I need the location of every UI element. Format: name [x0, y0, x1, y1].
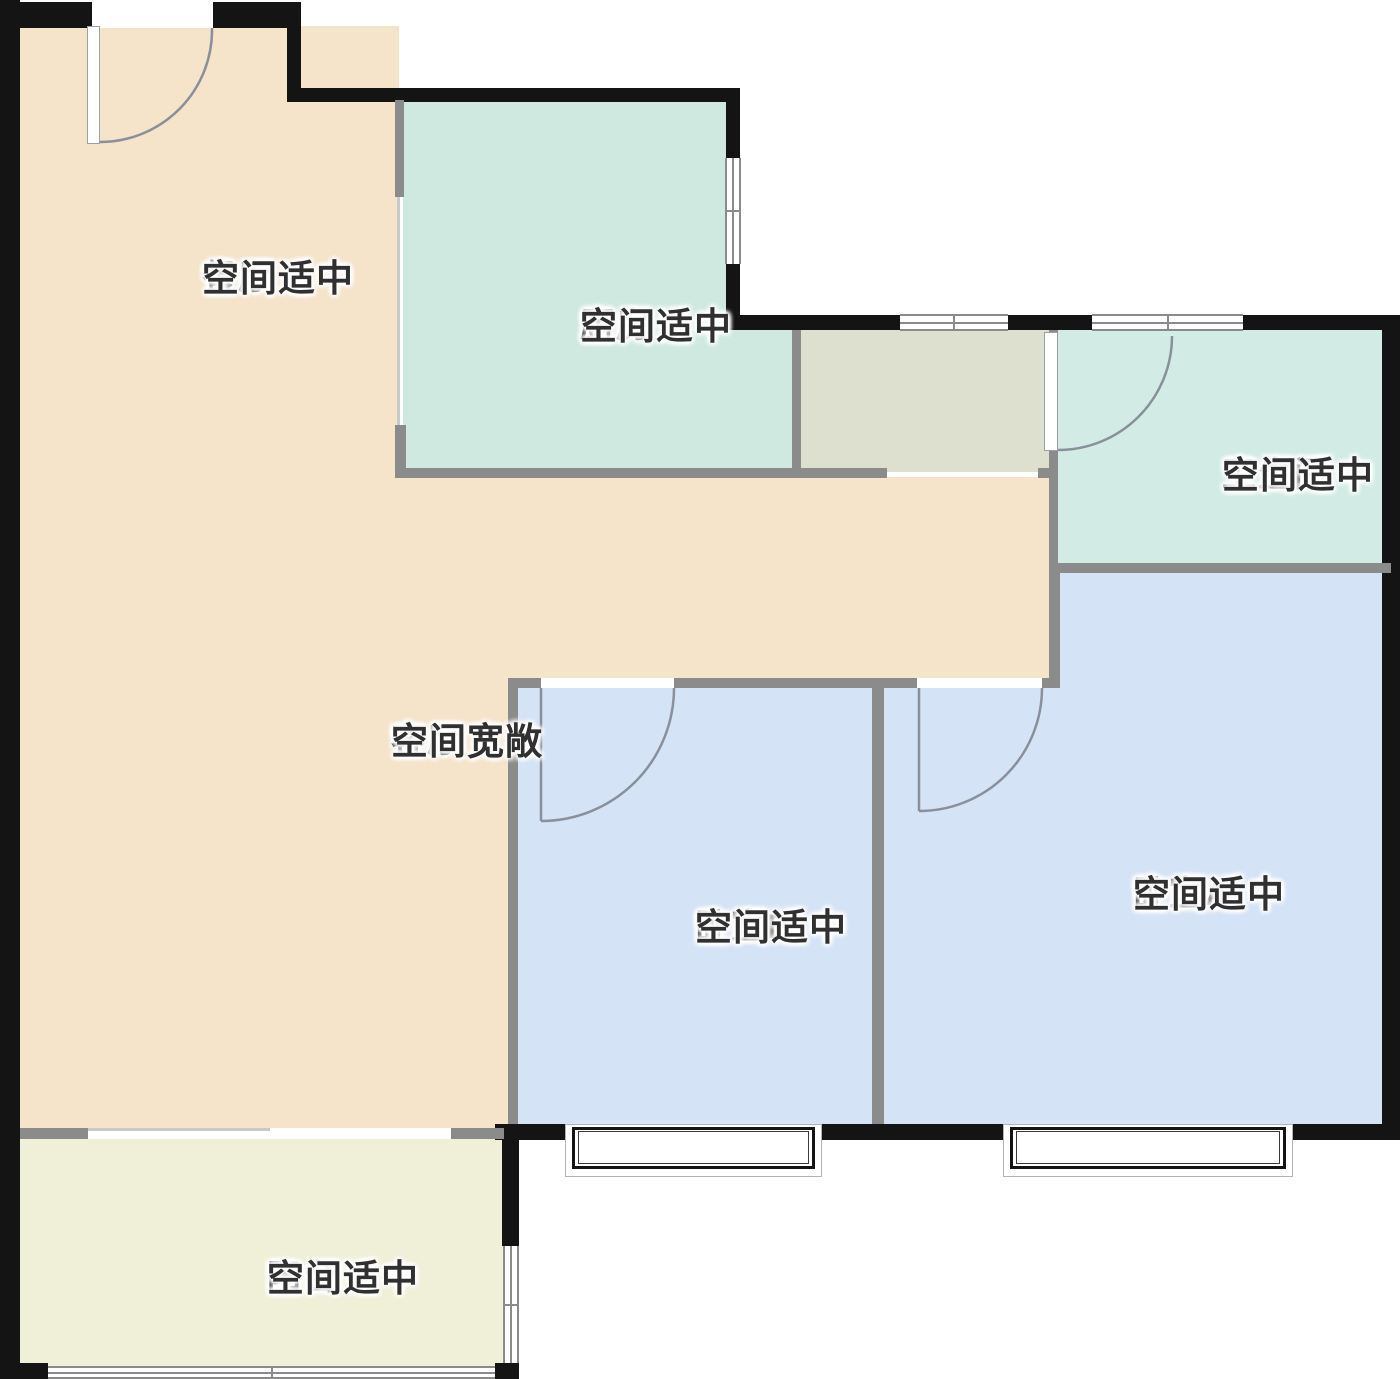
bay-window-bedroom-a-glass [1016, 1131, 1280, 1164]
bathroom-desc: 空间适中 [1222, 455, 1374, 496]
wall-corner-balcony-left [0, 1363, 48, 1379]
bathroom-door-leaf [1044, 332, 1058, 451]
wall-right-exterior [1382, 315, 1400, 1140]
wall-step-horizontal [301, 88, 740, 102]
balcony-sliding-leaf [88, 1128, 270, 1131]
wall-bedrooms-top-c [1042, 678, 1060, 688]
wall-corner-balcony-right [495, 1363, 519, 1379]
window-top-2 [1092, 314, 1243, 331]
wall-top-right-exterior [726, 315, 1400, 330]
utility-nook-floor [794, 330, 1051, 472]
window-kitchen-right [725, 158, 741, 264]
wall-balcony-divider-b [451, 1128, 504, 1139]
bedroom-b-door-opening [541, 678, 674, 688]
window-balcony-bottom [48, 1366, 495, 1379]
entrance-door-opening [92, 2, 213, 28]
bedroom-a-door-opening [917, 678, 1042, 688]
kitchen-sliding-partition [397, 197, 400, 427]
bedroom-a-desc: 空间适中 [1133, 874, 1285, 915]
kitchen-desc: 空间适中 [580, 306, 732, 347]
dining-desc: 空间适中 [202, 258, 354, 299]
balcony-floor [20, 1137, 504, 1369]
hallway-floor [395, 477, 1051, 680]
floor-plan: 餐厅 空间适中 厨房 空间适中 卫生间 空间适中 客厅 空间宽敞 卧室B 空间适… [0, 0, 1400, 1379]
wall-balcony-right-upper [502, 1128, 519, 1246]
bathroom-floor [1056, 330, 1384, 567]
balcony-desc: 空间适中 [267, 1258, 419, 1299]
wall-step-vertical [287, 2, 301, 102]
bedroom-b-desc: 空间适中 [695, 907, 847, 948]
living-desc: 空间宽敞 [391, 721, 543, 762]
kitchen-floor-upper [403, 100, 726, 332]
wall-bedroom-divider [872, 678, 884, 1124]
wall-bathroom-bottom [1049, 563, 1391, 573]
bay-window-bedroom-b-glass [578, 1131, 809, 1164]
wall-kitchen-left-upper [395, 100, 404, 197]
wall-hall-right [1049, 573, 1060, 685]
window-balcony-right [503, 1246, 519, 1363]
wall-hall-top [395, 468, 887, 478]
wall-left-exterior [0, 0, 20, 1379]
kitchen-floor-lower [403, 330, 794, 470]
window-top-1 [900, 314, 1008, 331]
entrance-door-leaf [87, 26, 100, 144]
wall-nook-left [792, 330, 801, 475]
wall-balcony-divider-a [20, 1128, 88, 1139]
bedroom-a-floor-upper [1058, 567, 1384, 688]
wall-bathroom-left-lower [1049, 449, 1058, 573]
